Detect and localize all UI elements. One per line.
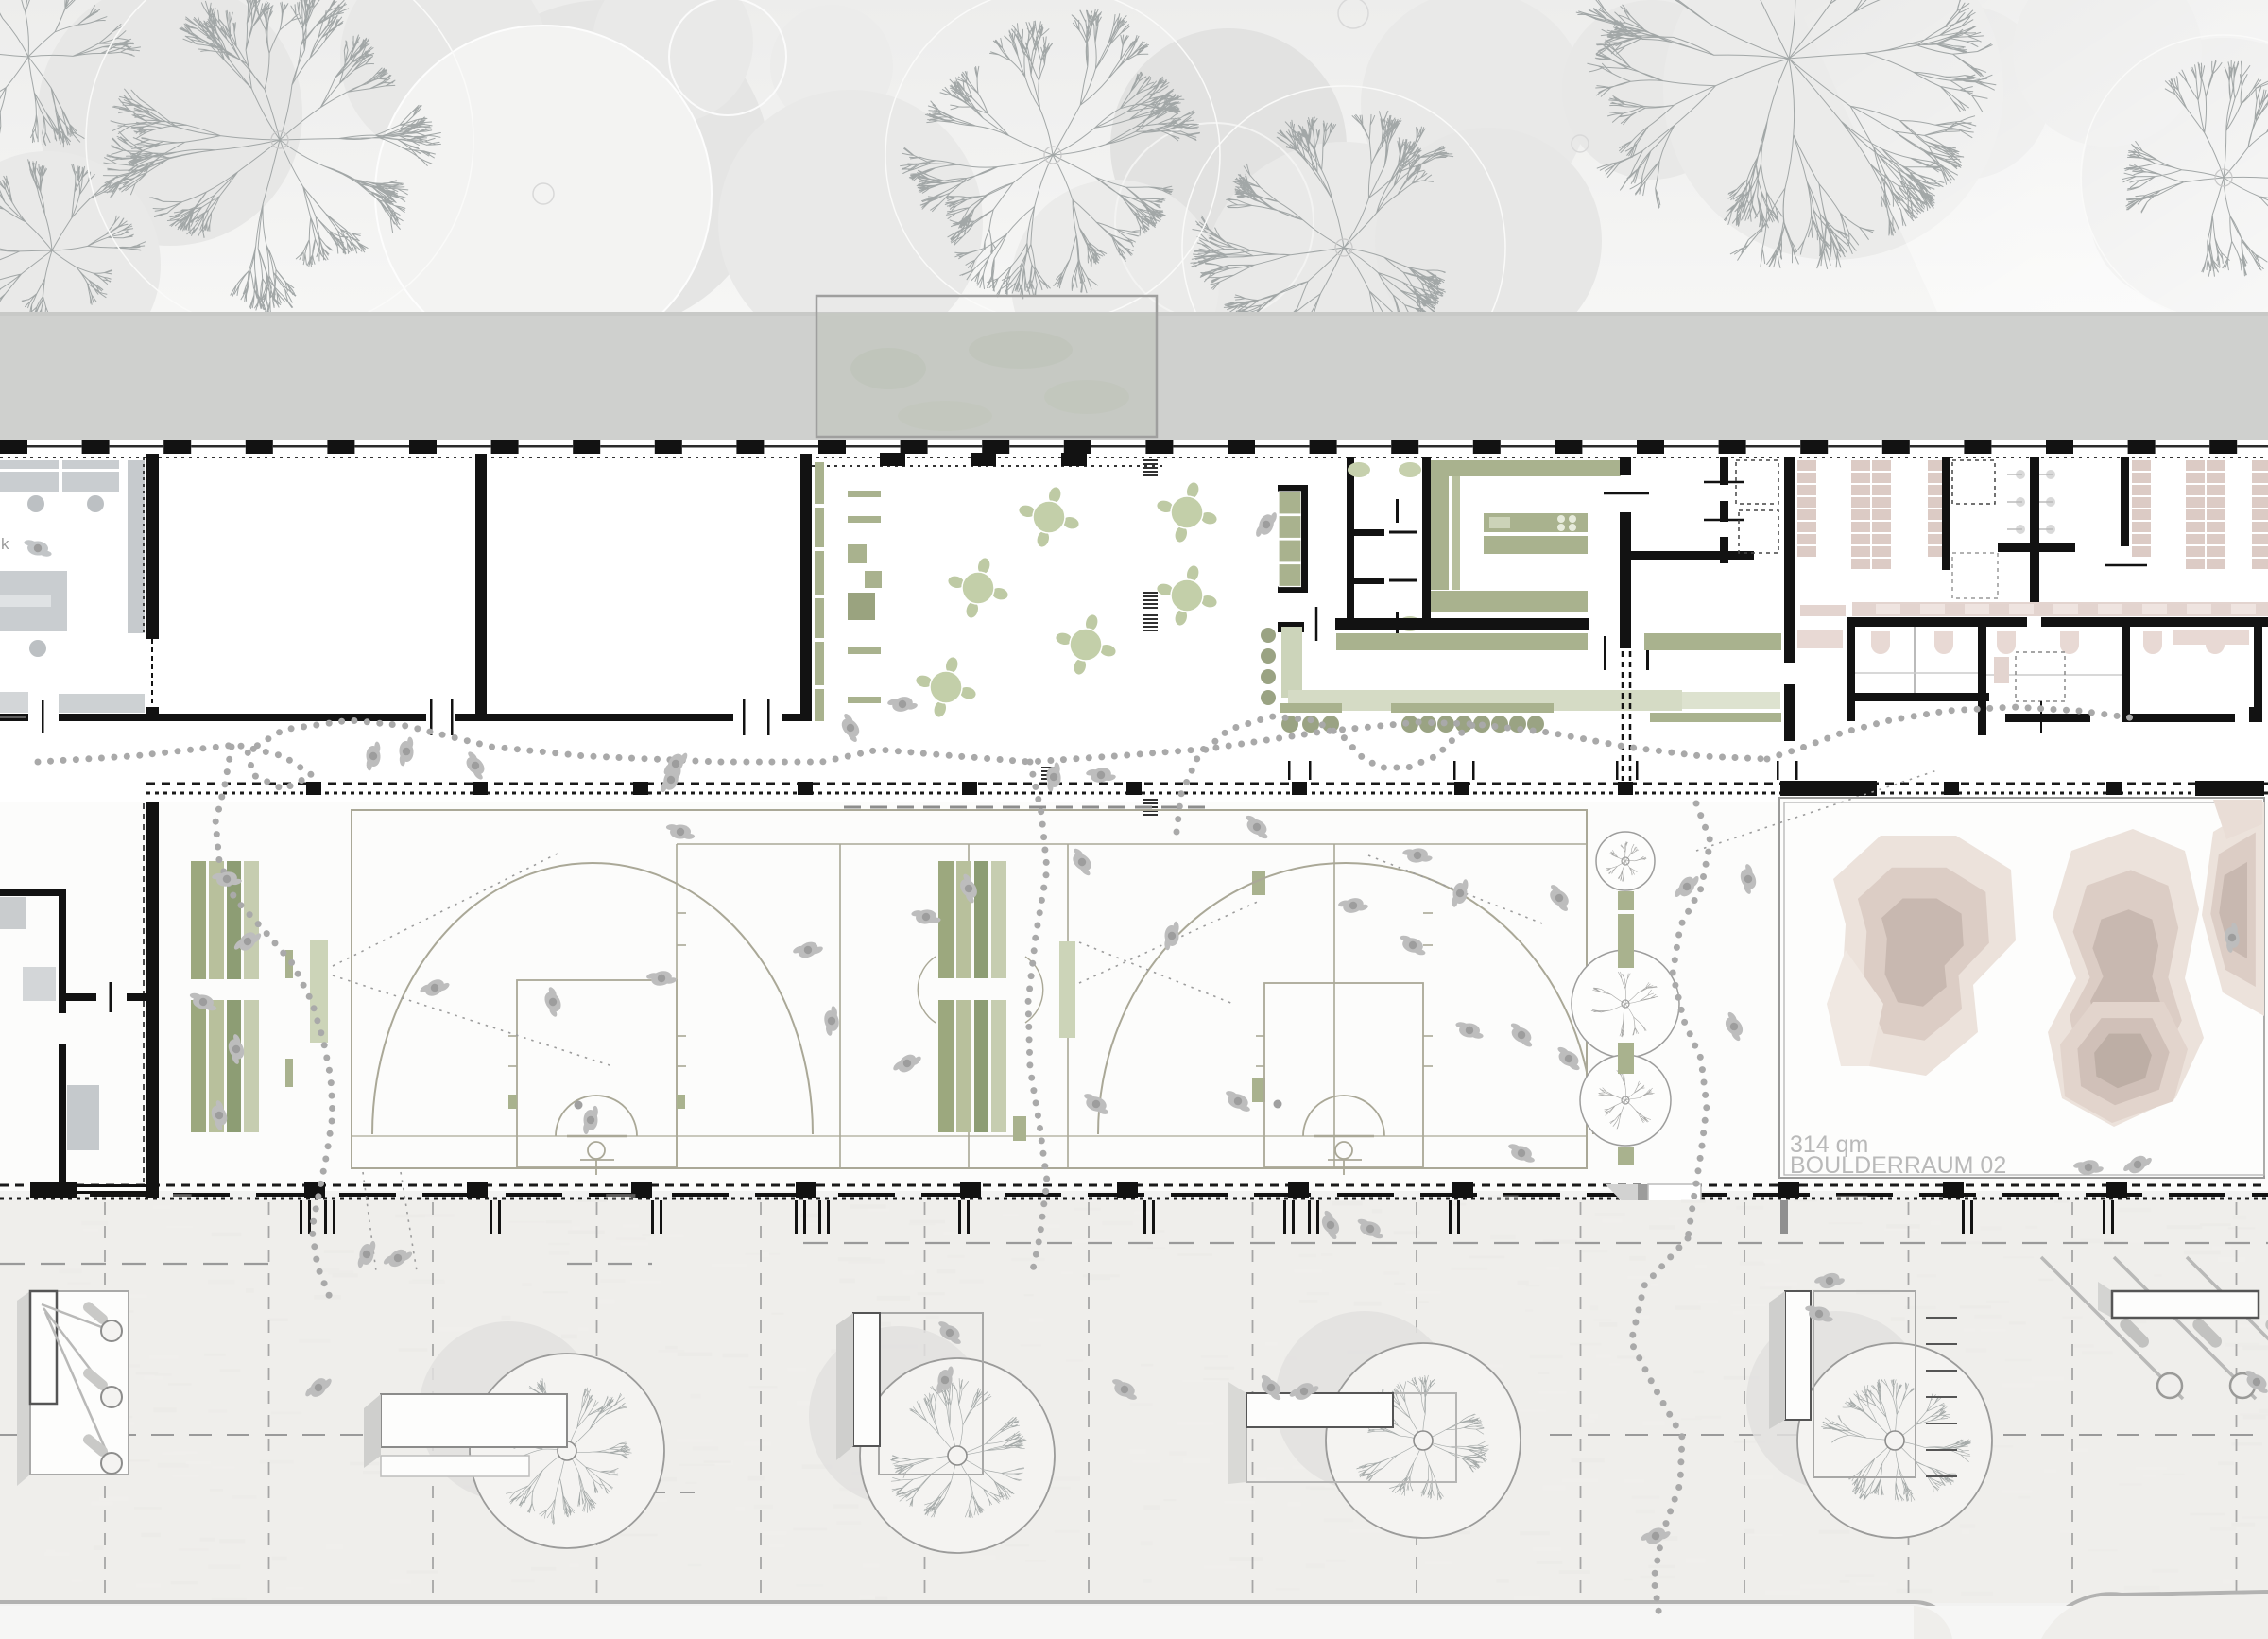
svg-text:BOULDERRAUM 02: BOULDERRAUM 02 [1790, 1152, 2006, 1179]
svg-text:k: k [1, 535, 9, 553]
